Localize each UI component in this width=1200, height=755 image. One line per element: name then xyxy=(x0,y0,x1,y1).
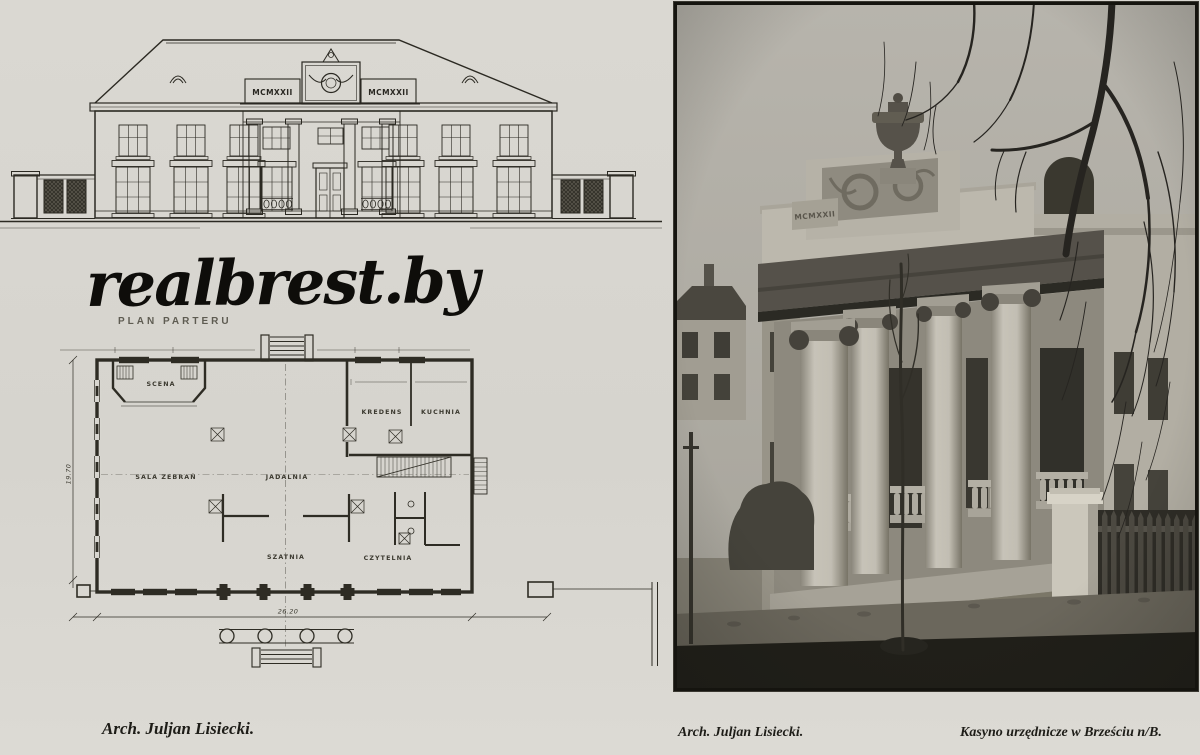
architect-caption-right: Arch. Juljan Lisiecki. xyxy=(678,725,803,741)
room-label-czytelnia: CZYTELNIA xyxy=(364,555,413,562)
room-label-sala-zebran: SALA ZEBRAŃ xyxy=(135,472,196,481)
lower-windows xyxy=(112,161,535,218)
plan-dimension-depth: 19.70 xyxy=(65,464,73,485)
attic-inscription-left: MCMXXII xyxy=(252,88,292,97)
wreath-emblem-icon xyxy=(309,74,353,93)
dimension-lines: 26.20 19.70 xyxy=(60,347,551,621)
watermark: realbrest.by xyxy=(86,244,479,321)
side-gate-right xyxy=(552,172,636,219)
photo-title-caption: Kasyno urzędnicze w Brześciu n/B. xyxy=(960,725,1162,741)
scanned-page: MCMXXII MCMXXII xyxy=(0,0,1200,755)
plan-dimension-width: 26.20 xyxy=(278,608,299,616)
attic-inscription-right: MCMXXII xyxy=(368,88,408,97)
room-label-kredens: KREDENS xyxy=(361,409,402,416)
architect-caption-left: Arch. Juljan Lisiecki. xyxy=(102,719,254,739)
room-label-szatnia: SZATNIA xyxy=(267,554,305,561)
finial-icon xyxy=(323,49,339,62)
portico-plan xyxy=(219,629,354,667)
room-label-jadalnia: JADALNIA xyxy=(265,474,309,481)
interior-walls xyxy=(101,361,487,648)
room-label-kuchnia: KUCHNIA xyxy=(421,409,461,416)
side-gate-left xyxy=(11,172,95,219)
floor-plan-drawing: 26.20 19.70 xyxy=(55,330,667,670)
front-elevation-drawing: MCMXXII MCMXXII xyxy=(0,6,672,251)
upper-windows xyxy=(116,125,531,160)
ground-line xyxy=(0,222,662,229)
building-outline xyxy=(90,40,557,218)
attic-panel: MCMXXII MCMXXII xyxy=(240,49,420,104)
plan-title: PLAN PARTERU xyxy=(118,316,232,327)
building-photo: MCMXXII xyxy=(674,2,1198,691)
photo-vignette xyxy=(674,2,1198,691)
north-steps xyxy=(261,335,313,361)
room-label-scena: SCENA xyxy=(146,381,175,388)
